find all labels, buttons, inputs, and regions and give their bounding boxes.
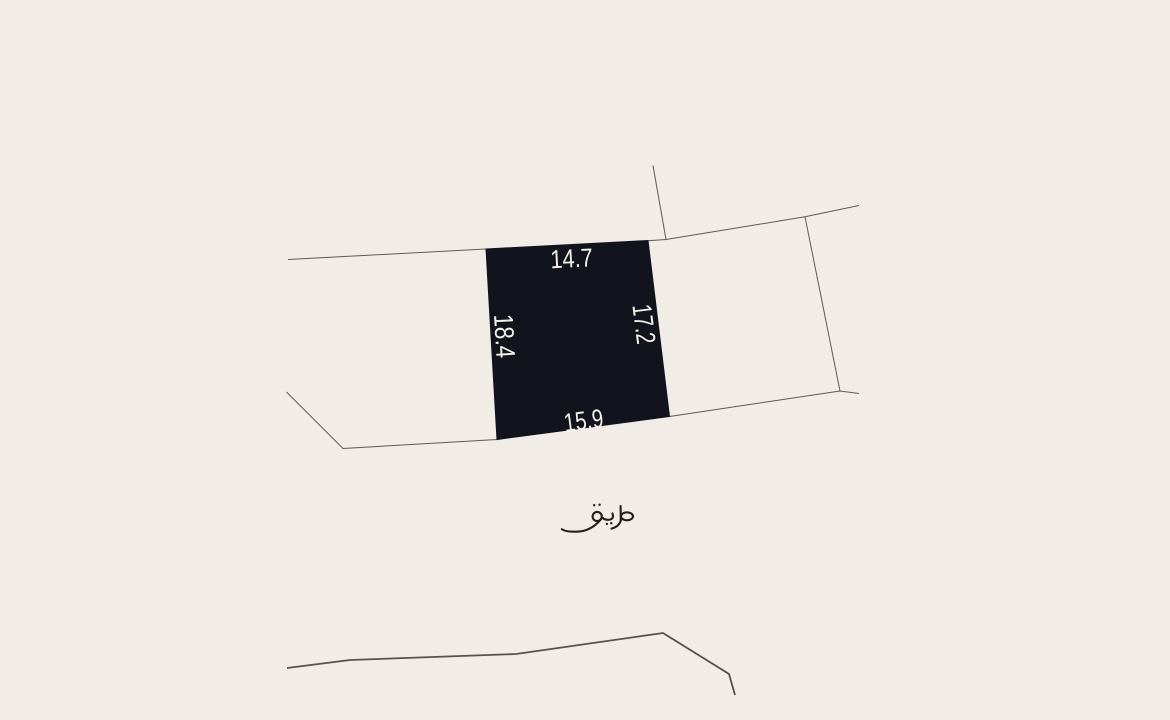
svg-text:17.2: 17.2 [626,302,661,345]
svg-text:18.4: 18.4 [488,313,520,359]
svg-text:14.7: 14.7 [550,242,594,274]
svg-text:15.9: 15.9 [562,403,605,438]
